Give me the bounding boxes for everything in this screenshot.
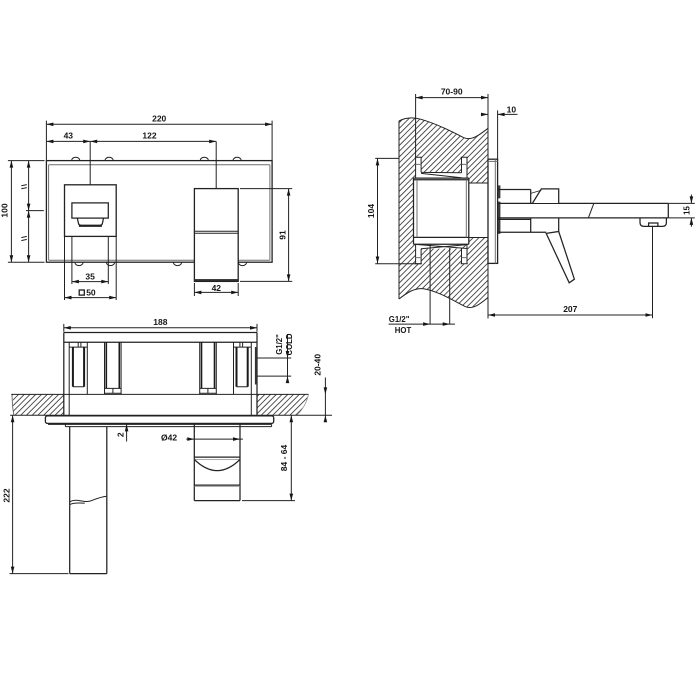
svg-text:207: 207 — [563, 304, 577, 314]
svg-text:222: 222 — [1, 488, 11, 502]
svg-text:Ø42: Ø42 — [161, 432, 177, 442]
svg-text:91: 91 — [277, 230, 287, 240]
svg-text:84 - 64: 84 - 64 — [279, 444, 289, 471]
svg-text:20-40: 20-40 — [313, 354, 323, 376]
svg-text:70-90: 70-90 — [441, 87, 463, 97]
svg-text:122: 122 — [142, 131, 156, 141]
svg-text:G1/2": G1/2" — [275, 334, 284, 355]
svg-text:2: 2 — [115, 432, 125, 437]
svg-text:G1/2": G1/2" — [389, 315, 410, 324]
svg-text:220: 220 — [152, 114, 166, 124]
svg-text:COLD: COLD — [285, 333, 294, 355]
svg-text:42: 42 — [212, 283, 222, 293]
svg-text:104: 104 — [366, 204, 376, 218]
svg-text:HOT: HOT — [395, 326, 412, 335]
svg-text:43: 43 — [64, 131, 74, 141]
svg-text:15: 15 — [682, 206, 691, 215]
svg-text:188: 188 — [153, 317, 167, 327]
svg-text:35: 35 — [85, 272, 95, 282]
svg-text:50: 50 — [86, 288, 96, 298]
svg-text:10: 10 — [507, 105, 517, 115]
svg-text:100: 100 — [0, 203, 9, 217]
